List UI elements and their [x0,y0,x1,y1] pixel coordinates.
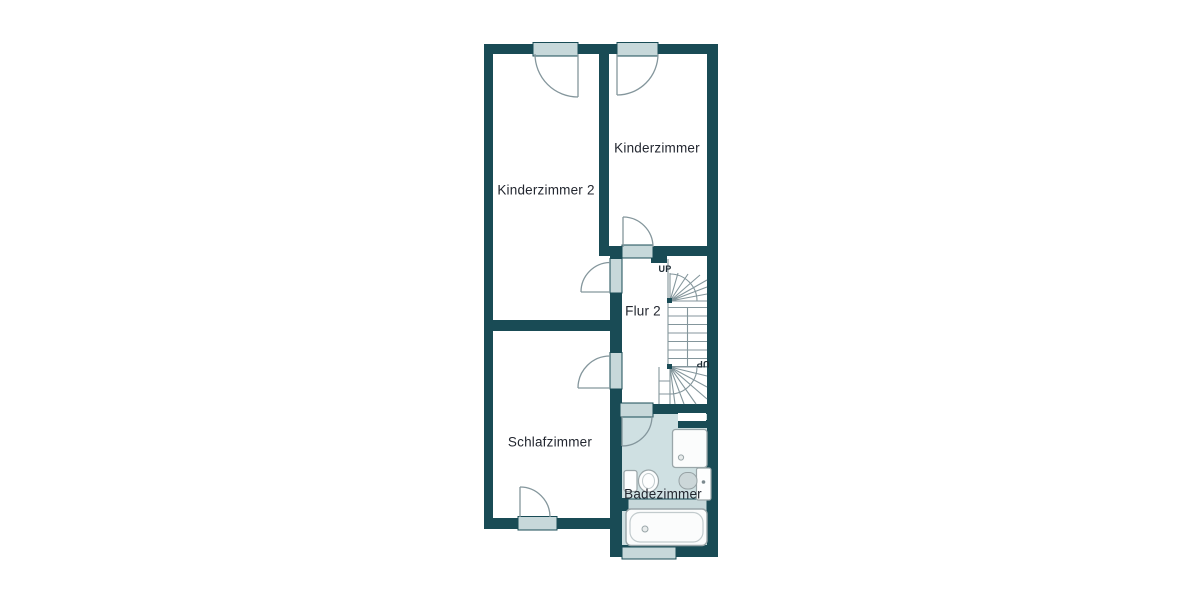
shower [673,430,708,468]
stair-newel-top [667,298,672,303]
bathroom-shaft-gap [678,413,706,421]
window-badezimmer-bottom [622,547,676,559]
floorplan-drawing [0,0,1200,600]
room-label-kinderzimmer2: Kinderzimmer 2 [497,183,594,198]
wall-divider-schlafzimmer [484,320,622,331]
stairs-up-label-top: UP [658,264,671,274]
stair-stringer-left [659,259,668,404]
room-label-flur2: Flur 2 [625,304,661,319]
door-arc-schlafzimmer-bottom [520,487,550,517]
sink-faucet [702,480,706,484]
door-arc-kinderzimmer2-top [535,54,578,97]
window-kinderzimmer2-top [533,43,578,57]
wall-bathroom-shaft-stub [678,420,717,428]
stair-winder-top-treads [670,273,707,301]
stairs-up-label-bottom: UP [696,359,709,369]
bathtub [626,509,707,546]
shower-drain [678,455,683,460]
staircase [659,259,707,404]
room-label-kinderzimmer: Kinderzimmer [614,141,700,156]
bathtub-drain [642,526,648,532]
stair-newel-bottom [667,364,672,369]
door-opening-kinderzimmer [622,245,653,258]
door-opening-badezimmer [620,403,653,417]
wall-bathroom-top [653,404,717,414]
door-opening-schlafzimmer [610,353,622,390]
wall-left-exterior [484,44,493,529]
stair-winder-bottom-left-treads [659,381,670,394]
door-opening-kinderzimmer2 [610,259,622,294]
floorplan-canvas: Kinderzimmer Kinderzimmer 2 Flur 2 Schla… [0,0,1200,600]
stair-winder-bottom-treads [670,367,707,404]
door-arc-kinderzimmer2 [581,263,610,293]
room-label-badezimmer: Badezimmer [624,487,702,502]
wall-divider-kinderzimmer [599,44,609,256]
room-label-schlafzimmer: Schlafzimmer [508,435,592,450]
door-opening-schlafzimmer-bottom [518,517,557,531]
door-arc-schlafzimmer [578,356,610,388]
door-arc-kinderzimmer-top [617,54,658,95]
door-arc-kinderzimmer [623,217,653,247]
window-kinderzimmer-top [617,43,658,57]
